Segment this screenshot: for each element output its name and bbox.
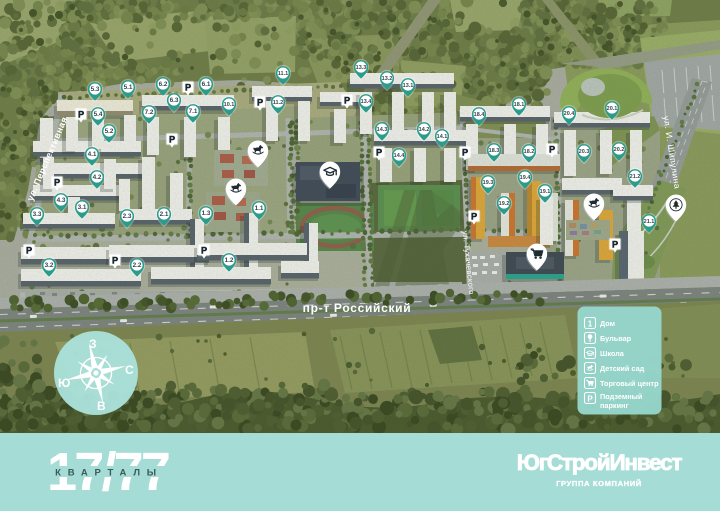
svg-text:ЮгСтройИнвест: ЮгСтройИнвест: [517, 450, 683, 475]
svg-text:Школа: Школа: [600, 349, 625, 358]
svg-text:3.3: 3.3: [33, 211, 42, 218]
svg-text:19.2: 19.2: [499, 201, 510, 207]
svg-text:4.1: 4.1: [88, 151, 97, 158]
svg-text:Торговый центр: Торговый центр: [600, 379, 659, 388]
svg-text:3.2: 3.2: [45, 262, 54, 269]
svg-text:2.3: 2.3: [123, 213, 132, 220]
svg-text:Подземный: Подземный: [600, 392, 642, 401]
svg-text:14.3: 14.3: [377, 127, 388, 133]
svg-text:7.2: 7.2: [145, 109, 154, 116]
svg-text:2.2: 2.2: [133, 262, 142, 269]
svg-text:20.2: 20.2: [614, 147, 625, 153]
svg-text:19.4: 19.4: [520, 175, 532, 181]
svg-text:7.1: 7.1: [189, 108, 198, 115]
svg-text:КВАРТАЛЫ: КВАРТАЛЫ: [55, 468, 163, 479]
svg-text:Бульвар: Бульвар: [600, 334, 632, 343]
svg-text:20.1: 20.1: [607, 106, 618, 112]
svg-text:18.2: 18.2: [524, 149, 535, 155]
svg-text:20.3: 20.3: [579, 149, 590, 155]
svg-text:14.4: 14.4: [394, 153, 406, 159]
svg-text:1.2: 1.2: [225, 257, 234, 264]
svg-text:паркинг: паркинг: [600, 401, 629, 410]
svg-text:20.4: 20.4: [564, 111, 576, 117]
svg-text:З: З: [89, 337, 97, 351]
svg-text:10.1: 10.1: [224, 102, 235, 108]
svg-text:19.1: 19.1: [540, 189, 551, 195]
svg-text:21.2: 21.2: [630, 174, 641, 180]
svg-text:6.2: 6.2: [159, 81, 168, 88]
svg-text:6.1: 6.1: [202, 81, 211, 88]
svg-text:21.1: 21.1: [644, 219, 655, 225]
svg-text:4.2: 4.2: [93, 174, 102, 181]
svg-text:пр-т Российский: пр-т Российский: [303, 301, 412, 315]
svg-text:6.3: 6.3: [170, 97, 179, 104]
svg-text:С: С: [125, 363, 134, 377]
svg-text:18.1: 18.1: [514, 102, 525, 108]
svg-text:13.4: 13.4: [361, 99, 373, 105]
svg-text:5.3: 5.3: [91, 86, 100, 93]
svg-text:2.1: 2.1: [160, 211, 169, 218]
svg-text:4.3: 4.3: [57, 197, 66, 204]
svg-text:13.1: 13.1: [403, 83, 414, 89]
svg-text:13.3: 13.3: [356, 65, 367, 71]
svg-text:19.3: 19.3: [483, 180, 494, 186]
svg-text:3.1: 3.1: [78, 204, 87, 211]
svg-text:Ю: Ю: [58, 376, 70, 390]
svg-text:5.2: 5.2: [105, 128, 114, 135]
svg-text:Детский сад: Детский сад: [600, 364, 645, 373]
svg-text:18.4: 18.4: [474, 112, 486, 118]
svg-text:1: 1: [588, 320, 593, 329]
svg-text:P: P: [587, 395, 593, 404]
svg-text:ГРУППА КОМПАНИЙ: ГРУППА КОМПАНИЙ: [556, 479, 642, 488]
svg-text:5.1: 5.1: [124, 84, 133, 91]
svg-text:11.2: 11.2: [273, 100, 283, 106]
svg-text:1.3: 1.3: [202, 210, 211, 217]
svg-text:14.2: 14.2: [419, 127, 430, 133]
svg-text:Дом: Дом: [600, 319, 615, 328]
svg-text:В: В: [97, 399, 106, 413]
svg-text:13.2: 13.2: [382, 76, 393, 82]
svg-text:5.4: 5.4: [94, 111, 103, 118]
svg-text:14.1: 14.1: [437, 134, 448, 140]
svg-text:11.1: 11.1: [278, 71, 288, 77]
svg-text:18.3: 18.3: [489, 148, 500, 154]
svg-text:1.1: 1.1: [255, 205, 264, 212]
